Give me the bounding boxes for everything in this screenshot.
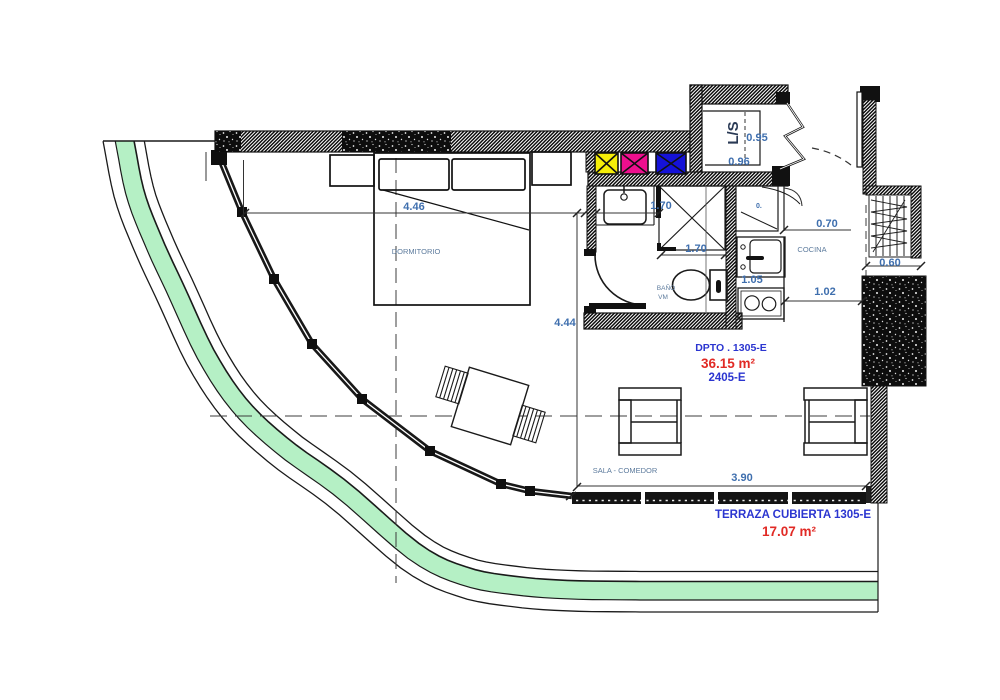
svg-text:36.15 m²: 36.15 m² [701, 356, 756, 371]
svg-text:0.70: 0.70 [816, 218, 837, 230]
svg-text:4.44: 4.44 [554, 317, 576, 329]
svg-text:1.70: 1.70 [650, 200, 671, 212]
svg-text:4.46: 4.46 [403, 201, 424, 213]
svg-text:0.95: 0.95 [746, 132, 767, 144]
svg-text:COCINA: COCINA [797, 245, 826, 254]
svg-text:17.07 m²: 17.07 m² [762, 524, 817, 539]
svg-text:BAÑO: BAÑO [657, 283, 675, 292]
svg-text:0.: 0. [756, 203, 762, 210]
svg-text:VM: VM [658, 294, 668, 301]
svg-text:DPTO . 1305-E: DPTO . 1305-E [695, 342, 767, 354]
svg-text:SALA - COMEDOR: SALA - COMEDOR [593, 466, 658, 475]
svg-text:0.96: 0.96 [728, 156, 749, 168]
svg-text:0.60: 0.60 [879, 257, 900, 269]
svg-text:1.05: 1.05 [741, 274, 762, 286]
svg-text:L/S: L/S [725, 121, 742, 144]
svg-text:1.70: 1.70 [685, 243, 706, 255]
svg-text:2405-E: 2405-E [708, 372, 745, 384]
svg-text:3.90: 3.90 [731, 472, 752, 484]
svg-text:TERRAZA CUBIERTA 1305-E: TERRAZA CUBIERTA 1305-E [715, 509, 871, 521]
svg-text:1.02: 1.02 [814, 286, 835, 298]
svg-text:DORMITORIO: DORMITORIO [392, 247, 441, 256]
